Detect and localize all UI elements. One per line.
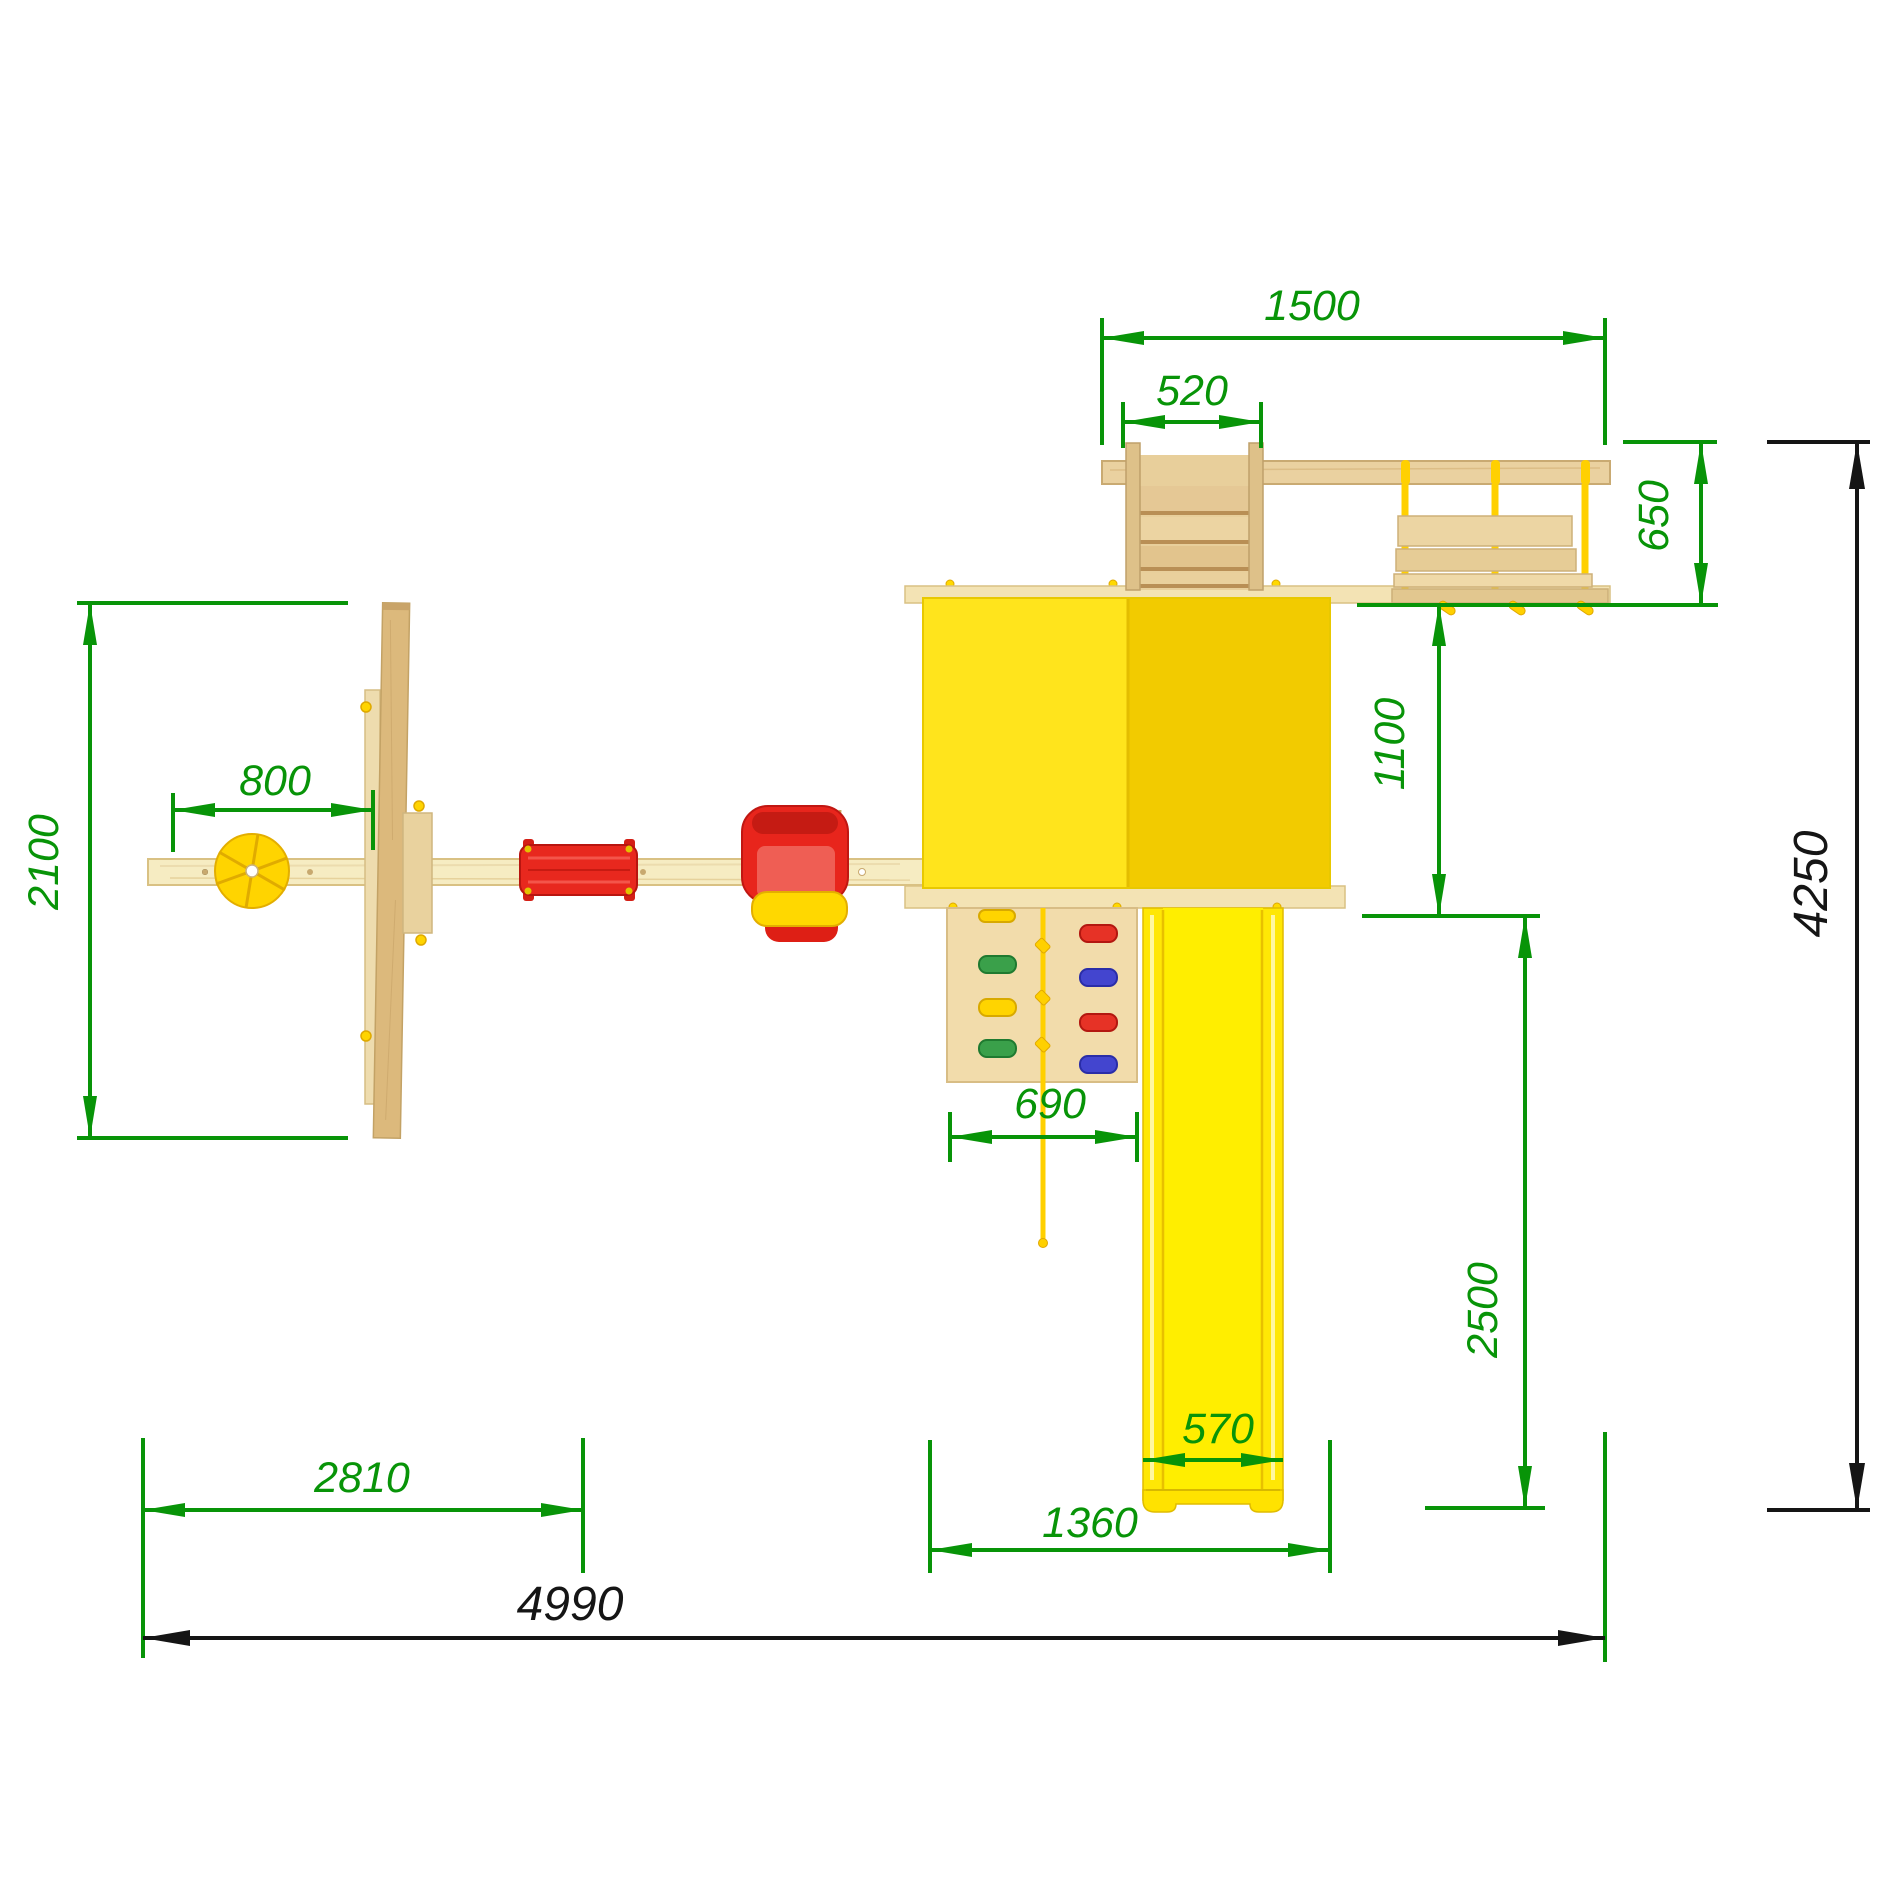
- green-dimensions: 1500 520 650 1100: [20, 282, 1718, 1662]
- dim-4990-label: 4990: [517, 1578, 624, 1631]
- tower-roof: [923, 598, 1330, 888]
- dim-2500: 2500: [1425, 916, 1545, 1508]
- dim-1100-label: 1100: [1366, 698, 1414, 791]
- dim-4250: 4250: [1767, 442, 1870, 1510]
- playground-top-view-drawing: 1500 520 650 1100: [0, 0, 1900, 1900]
- dim-2810-label: 2810: [313, 1454, 410, 1502]
- ladder: [1126, 443, 1263, 590]
- dim-4990: 4990: [143, 1578, 1605, 1646]
- flat-swing-seat: [520, 839, 637, 901]
- dim-1100: 1100: [1362, 604, 1540, 916]
- disc-swing-seat: [215, 834, 289, 908]
- dim-800: 800: [173, 757, 373, 852]
- dim-1500-label: 1500: [1264, 282, 1360, 330]
- dim-650-label: 650: [1630, 480, 1678, 552]
- dim-520-label: 520: [1156, 367, 1228, 415]
- dim-1360-label: 1360: [1042, 1499, 1138, 1547]
- dim-800-label: 800: [239, 757, 311, 805]
- dim-2500-label: 2500: [1459, 1262, 1507, 1359]
- rope-bridge: [1392, 484, 1608, 616]
- dim-2100-label: 2100: [20, 814, 68, 911]
- dim-570-label: 570: [1182, 1405, 1254, 1453]
- a-frame-posts: [361, 603, 432, 1138]
- dim-520: 520: [1123, 367, 1261, 448]
- dim-4250-label: 4250: [1785, 830, 1838, 937]
- dim-690-label: 690: [1014, 1080, 1086, 1128]
- drawing-canvas: 1500 520 650 1100: [0, 0, 1900, 1900]
- climbing-wall: [947, 908, 1137, 1248]
- baby-swing-seat: [742, 806, 848, 942]
